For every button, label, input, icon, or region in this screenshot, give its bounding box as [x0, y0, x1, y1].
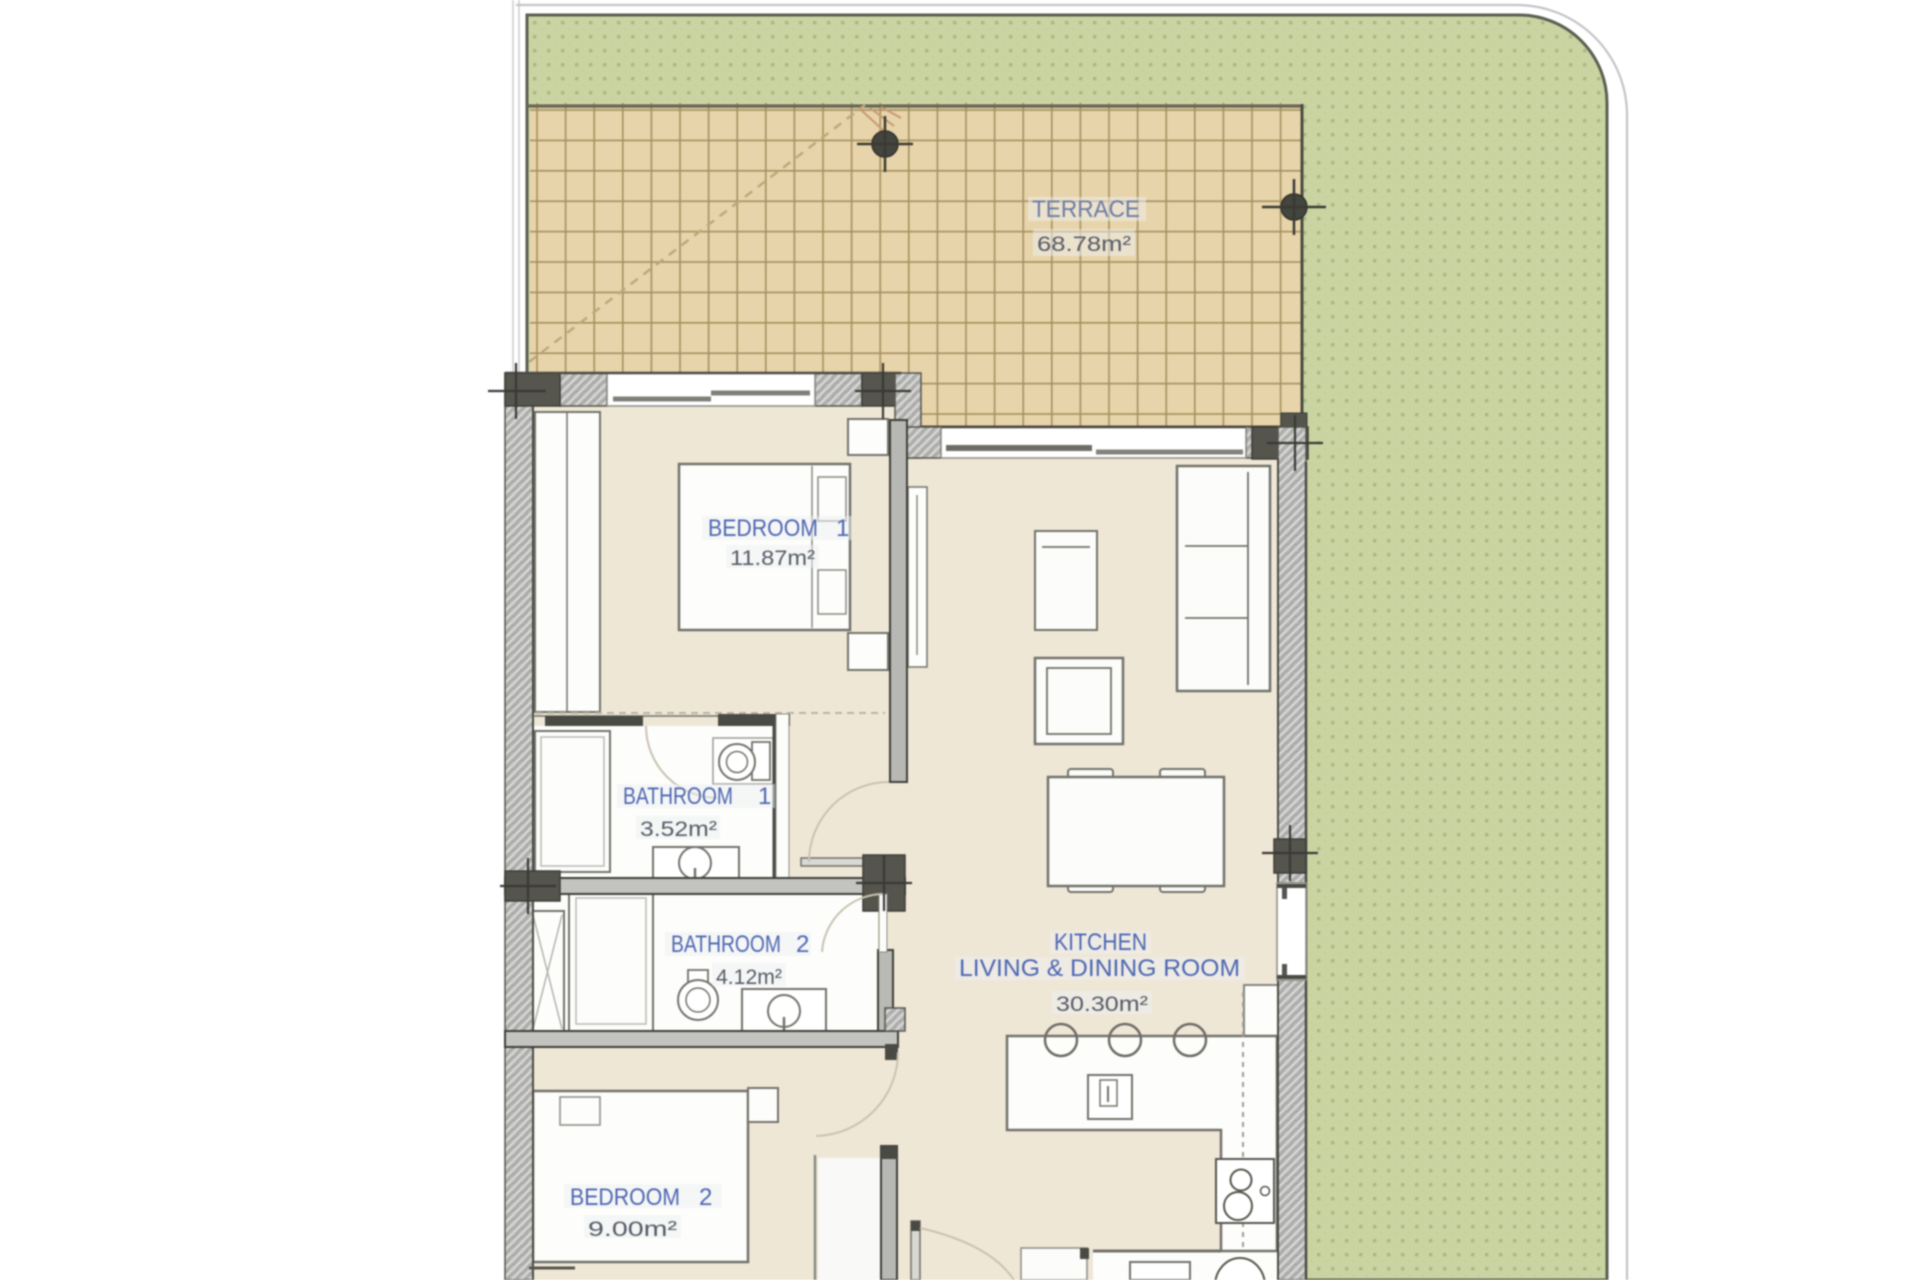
svg-text:BEDROOM: BEDROOM: [708, 515, 818, 542]
svg-text:30.30m²: 30.30m²: [1056, 993, 1148, 1016]
svg-text:TERRACE: TERRACE: [1032, 196, 1140, 223]
svg-text:BATHROOM: BATHROOM: [671, 931, 781, 958]
svg-text:BATHROOM: BATHROOM: [623, 783, 733, 810]
svg-text:LIVING & DINING ROOM: LIVING & DINING ROOM: [959, 955, 1240, 982]
svg-text:68.78m²: 68.78m²: [1037, 233, 1131, 256]
svg-text:3.52m²: 3.52m²: [640, 818, 717, 841]
svg-text:2: 2: [796, 931, 809, 958]
svg-text:BEDROOM: BEDROOM: [570, 1184, 680, 1211]
svg-text:2: 2: [699, 1184, 712, 1211]
svg-text:KITCHEN: KITCHEN: [1054, 929, 1147, 956]
svg-text:11.87m²: 11.87m²: [730, 547, 815, 570]
svg-text:1: 1: [758, 783, 771, 810]
svg-text:4.12m²: 4.12m²: [716, 966, 782, 989]
svg-text:9.00m²: 9.00m²: [588, 1218, 677, 1241]
svg-text:1: 1: [836, 515, 849, 542]
